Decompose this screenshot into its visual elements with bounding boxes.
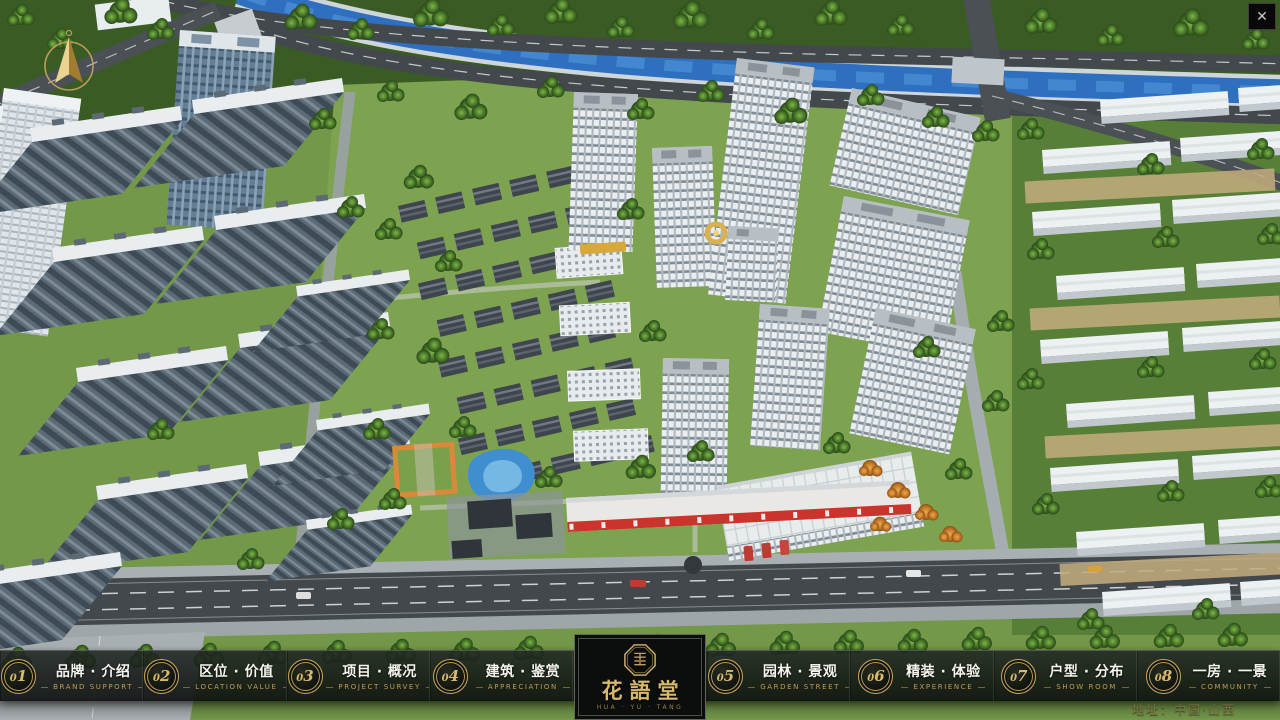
nav-item-label-en: EXPERIENCE xyxy=(901,683,985,691)
masterplan-aerial-view xyxy=(0,0,1280,720)
nav-item-number-badge: 07 xyxy=(1001,659,1036,694)
nav-item-brand-intro[interactable]: 01 品牌 · 介绍 BRAND SUPPORT xyxy=(0,651,143,701)
nav-item-label-zh: 园林 · 景观 xyxy=(763,661,838,681)
nav-item-number-badge: 06 xyxy=(858,659,893,694)
project-name: 花語堂 xyxy=(595,680,686,701)
nav-item-architecture-appreciation[interactable]: 04 建筑 · 鉴赏 APPRECIATION xyxy=(430,651,573,701)
bottom-nav-bar: 01 品牌 · 介绍 BRAND SUPPORT 02 区位 · 价值 LOCA… xyxy=(0,650,1280,701)
close-icon: ✕ xyxy=(1256,9,1268,25)
nav-item-label-en: SHOW ROOM xyxy=(1044,683,1129,691)
nav-item-label-zh: 户型 · 分布 xyxy=(1049,661,1124,681)
nav-item-project-overview[interactable]: 03 项目 · 概况 PROJECT SURVEY xyxy=(287,651,430,701)
compass-icon xyxy=(34,26,104,100)
project-address: 地址：中国·山西 xyxy=(1132,701,1236,718)
nav-item-label-zh: 区位 · 价值 xyxy=(199,661,274,681)
logo-cell: 花語堂 HUA · YU · TANG xyxy=(573,651,707,701)
nav-item-interior-experience[interactable]: 06 精装 · 体验 EXPERIENCE xyxy=(850,651,993,701)
nav-item-location-value[interactable]: 02 区位 · 价值 LOCATION VALUE xyxy=(143,651,286,701)
nav-item-room-view[interactable]: 08 一房 · 一景 COMMUNITY xyxy=(1137,651,1280,701)
nav-item-number-badge: 03 xyxy=(288,659,323,694)
close-button[interactable]: ✕ xyxy=(1248,3,1276,30)
nav-item-label-zh: 一房 · 一景 xyxy=(1193,661,1268,681)
nav-item-number-badge: 04 xyxy=(433,659,468,694)
nav-item-number-badge: 05 xyxy=(708,659,743,694)
app-window: ✕ 01 品牌 · 介绍 BRAND SUPPORT 02 区位 · 价值 LO… xyxy=(0,0,1280,720)
nav-item-number-badge: 02 xyxy=(144,659,179,694)
nav-group-right: 05 园林 · 景观 GARDEN STREET 06 精装 · 体验 EXPE… xyxy=(707,651,1280,701)
nav-item-label-zh: 精装 · 体验 xyxy=(906,661,981,681)
nav-item-landscape[interactable]: 05 园林 · 景观 GARDEN STREET xyxy=(707,651,850,701)
nav-item-label-en: APPRECIATION xyxy=(476,683,570,691)
nav-item-number-badge: 08 xyxy=(1146,659,1181,694)
nav-item-label-zh: 项目 · 概况 xyxy=(342,661,417,681)
project-logo[interactable]: 花語堂 HUA · YU · TANG xyxy=(574,634,706,720)
nav-item-label-en: LOCATION VALUE xyxy=(183,683,286,691)
nav-group-left: 01 品牌 · 介绍 BRAND SUPPORT 02 区位 · 价值 LOCA… xyxy=(0,651,573,701)
nav-item-label-en: PROJECT SURVEY xyxy=(326,683,429,691)
nav-item-label-zh: 建筑 · 鉴赏 xyxy=(486,661,561,681)
logo-seal-icon xyxy=(623,643,657,677)
nav-item-label-en: GARDEN STREET xyxy=(748,683,850,691)
nav-item-floorplan-distribution[interactable]: 07 户型 · 分布 SHOW ROOM xyxy=(994,651,1137,701)
nav-item-label-en: COMMUNITY xyxy=(1189,683,1271,691)
project-name-latin: HUA · YU · TANG xyxy=(597,704,683,711)
nav-item-label-zh: 品牌 · 介绍 xyxy=(56,661,131,681)
nav-item-label-en: BRAND SUPPORT xyxy=(41,683,143,691)
nav-item-number-badge: 01 xyxy=(1,659,36,694)
